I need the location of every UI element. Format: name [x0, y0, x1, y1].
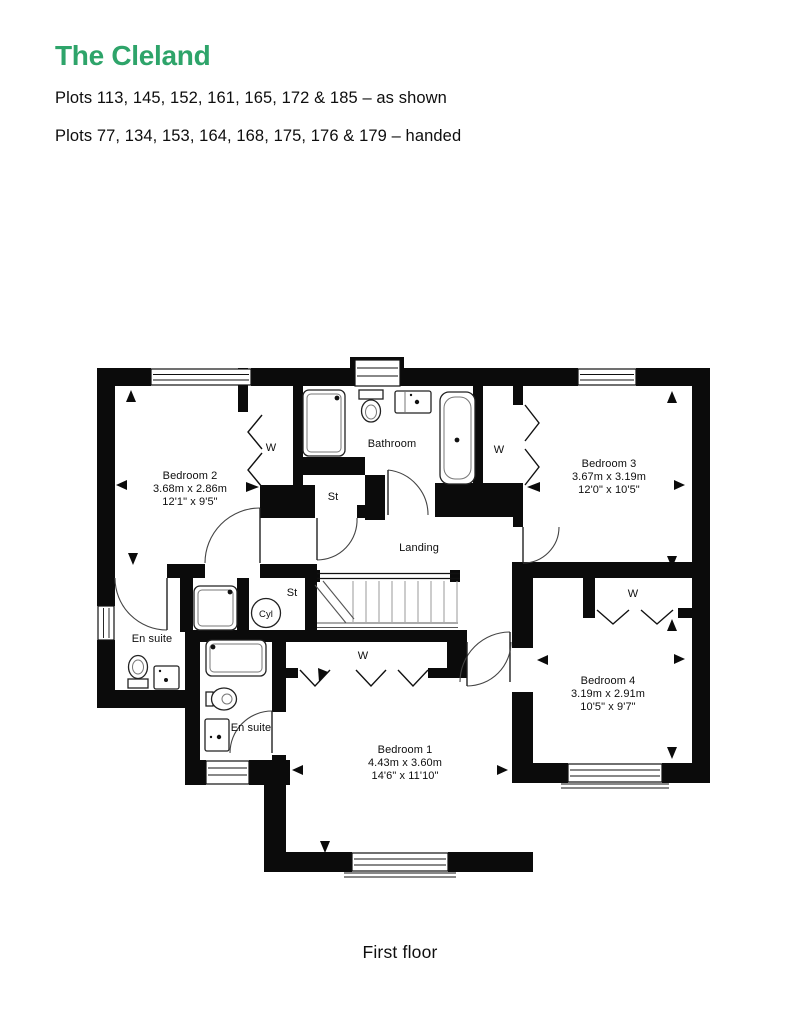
- arrow-down-icon: [320, 841, 330, 853]
- svg-text:12'0" x 10'5": 12'0" x 10'5": [578, 484, 640, 496]
- window-bedroom3: [578, 369, 636, 385]
- window-bedroom4: [561, 764, 669, 788]
- shower-ensuite1-icon: [194, 586, 237, 630]
- label-wardrobe-bedroom4: W: [628, 588, 639, 600]
- svg-text:Bedroom 2: Bedroom 2: [163, 470, 218, 482]
- bathtub-icon: [440, 392, 475, 484]
- door-bathroom: [388, 470, 428, 515]
- label-wardrobe-bedroom1: W: [358, 650, 369, 662]
- door-bedroom1: [467, 642, 511, 686]
- door-bedroom3: [523, 527, 559, 563]
- door-ensuite1: [115, 578, 167, 630]
- svg-text:Bedroom 1: Bedroom 1: [378, 744, 433, 756]
- label-bedroom3: Bedroom 3 3.67m x 3.19m 12'0" x 10'5": [572, 458, 646, 496]
- arrow-left-icon: [537, 655, 548, 665]
- label-wardrobe-bedroom2: W: [266, 442, 277, 454]
- basin-bathroom-icon: [395, 391, 431, 413]
- floor-plan: Bedroom 2 3.68m x 2.86m 12'1" x 9'5" Bed…: [0, 0, 800, 1036]
- bifold-bedroom4-wardrobe: [597, 610, 673, 624]
- toilet-bathroom-icon: [359, 390, 383, 422]
- label-cylinder: Cyl: [259, 609, 273, 620]
- bifold-bedroom1-wardrobe: [300, 668, 428, 686]
- arrow-down-icon: [128, 553, 138, 565]
- arrow-left-icon: [292, 765, 303, 775]
- basin-ensuite2-icon: [205, 719, 229, 751]
- arrow-left-icon: [116, 480, 127, 490]
- label-ensuite1: En suite: [132, 633, 173, 645]
- brochure-page: The Cleland Plots 113, 145, 152, 161, 16…: [0, 0, 800, 1036]
- shower-bathroom-icon: [303, 390, 345, 456]
- arrow-up-icon: [126, 390, 136, 402]
- arrow-up-icon: [667, 619, 677, 631]
- svg-text:4.43m x 3.60m: 4.43m x 3.60m: [368, 757, 442, 769]
- toilet-ensuite1-icon: [128, 656, 148, 689]
- arrow-up-icon: [667, 391, 677, 403]
- basin-ensuite1-icon: [154, 666, 179, 689]
- svg-text:3.68m x 2.86m: 3.68m x 2.86m: [153, 483, 227, 495]
- svg-text:3.19m x 2.91m: 3.19m x 2.91m: [571, 688, 645, 700]
- door-bedroom2: [205, 508, 260, 563]
- door-store-top: [317, 518, 357, 560]
- window-bedroom1: [344, 853, 456, 877]
- label-store-top: St: [328, 491, 339, 503]
- label-bedroom1: Bedroom 1 4.43m x 3.60m 14'6" x 11'10": [368, 744, 442, 782]
- window-bedroom2: [151, 369, 251, 385]
- svg-text:12'1" x 9'5": 12'1" x 9'5": [162, 496, 217, 508]
- arrow-right-icon: [674, 480, 685, 490]
- label-store-lower: St: [287, 587, 298, 599]
- bifold-bedroom3-wardrobe: [525, 405, 540, 492]
- staircase: [315, 574, 460, 628]
- svg-text:Bedroom 4: Bedroom 4: [581, 675, 636, 687]
- label-bedroom4: Bedroom 4 3.19m x 2.91m 10'5" x 9'7": [571, 675, 645, 713]
- window-bathroom: [355, 360, 400, 386]
- walls: [97, 357, 710, 872]
- toilet-ensuite2-icon: [206, 688, 237, 710]
- floor-caption: First floor: [0, 942, 800, 963]
- svg-text:Bedroom 3: Bedroom 3: [582, 458, 637, 470]
- window-ensuite2: [206, 761, 249, 784]
- label-ensuite2: En suite: [231, 722, 272, 734]
- arrow-down-icon: [667, 747, 677, 759]
- arrow-right-icon: [497, 765, 508, 775]
- bifold-bedroom2-wardrobe: [246, 415, 262, 492]
- window-ensuite1: [98, 606, 114, 640]
- svg-text:10'5" x 9'7": 10'5" x 9'7": [580, 701, 635, 713]
- arrow-right-icon: [674, 654, 685, 664]
- svg-text:3.67m x 3.19m: 3.67m x 3.19m: [572, 471, 646, 483]
- shower-ensuite2-icon: [206, 640, 266, 676]
- label-wardrobe-bedroom3: W: [494, 444, 505, 456]
- label-landing: Landing: [399, 542, 439, 554]
- label-bedroom2: Bedroom 2 3.68m x 2.86m 12'1" x 9'5": [153, 470, 227, 508]
- svg-text:14'6" x 11'10": 14'6" x 11'10": [371, 770, 438, 782]
- label-bathroom: Bathroom: [368, 438, 417, 450]
